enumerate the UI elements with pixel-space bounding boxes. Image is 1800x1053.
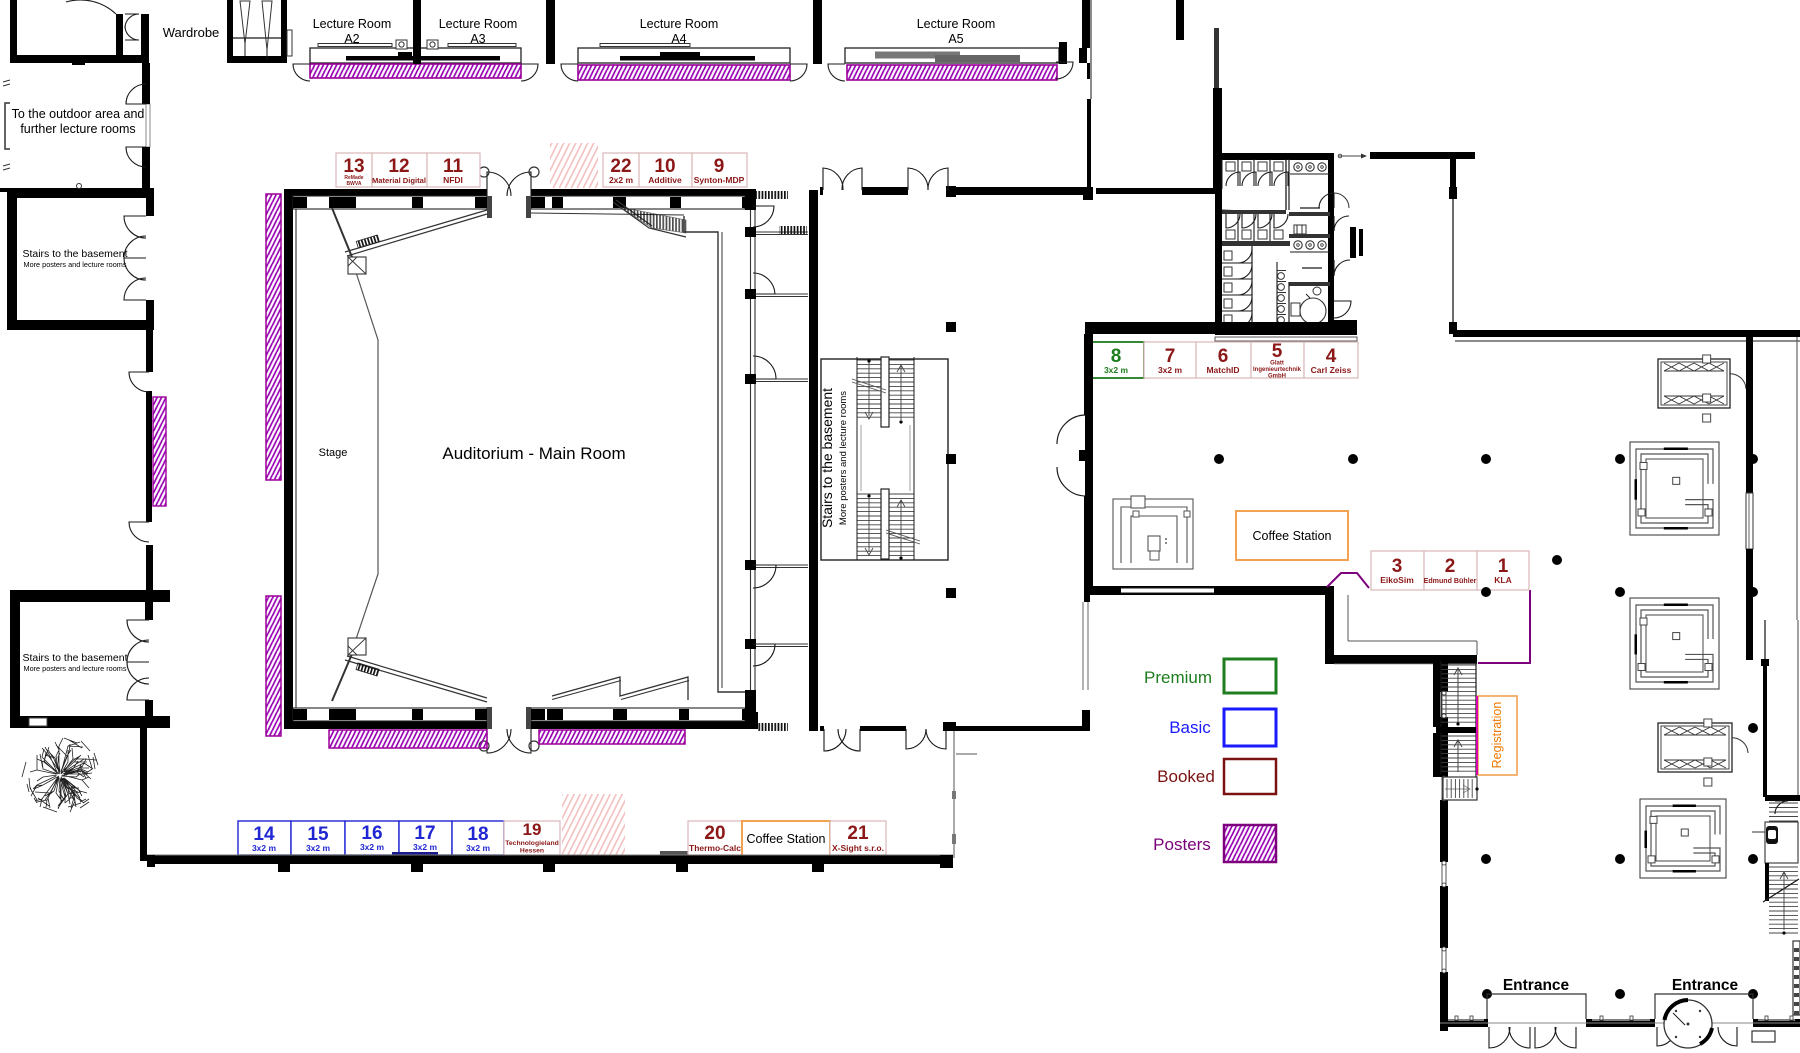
svg-text:2: 2 [1445,556,1456,577]
svg-text:Entrance: Entrance [1503,977,1570,994]
svg-text:Entrance: Entrance [1672,977,1739,994]
svg-text:13: 13 [343,156,364,177]
svg-text:Thermo-Calc: Thermo-Calc [689,843,741,853]
svg-text:14: 14 [253,824,275,845]
svg-text:1: 1 [1498,556,1509,577]
svg-text:3x2 m: 3x2 m [466,843,491,853]
svg-text:KLA: KLA [1494,575,1511,585]
svg-text:10: 10 [654,156,675,177]
svg-text:3x2 m: 3x2 m [1104,365,1129,375]
svg-text:Edmund Bühler: Edmund Bühler [1424,577,1477,585]
svg-text:Basic: Basic [1169,718,1211,737]
svg-text:22: 22 [610,156,631,177]
svg-text:3: 3 [1392,556,1403,577]
svg-text:Lecture Room: Lecture Room [439,17,518,31]
svg-text:6: 6 [1218,346,1229,367]
svg-text:To the outdoor area and: To the outdoor area and [12,107,145,121]
svg-text:16: 16 [361,823,382,844]
svg-text:7: 7 [1165,346,1176,367]
svg-text:15: 15 [307,824,329,845]
svg-text:Lecture Room: Lecture Room [917,17,996,31]
svg-text:Stairs to the basement: Stairs to the basement [22,248,127,260]
svg-text:21: 21 [847,823,869,844]
svg-text:MatchID: MatchID [1206,365,1239,375]
svg-text:EikoSim: EikoSim [1380,575,1414,585]
svg-text:Lecture Room: Lecture Room [640,17,719,31]
svg-text:further lecture rooms: further lecture rooms [20,122,135,136]
svg-text:20: 20 [704,823,725,844]
svg-text:3x2 m: 3x2 m [306,843,331,853]
svg-text:Technologieland: Technologieland [505,840,559,847]
svg-text:Coffee Station: Coffee Station [1253,529,1332,543]
svg-text:2x2 m: 2x2 m [609,175,634,185]
svg-text:11: 11 [443,156,464,177]
svg-text:X-Sight s.r.o.: X-Sight s.r.o. [832,843,884,853]
svg-text:A5: A5 [948,32,963,46]
svg-text:17: 17 [414,823,435,844]
svg-text:8: 8 [1111,346,1122,367]
svg-text:19: 19 [523,820,542,839]
svg-text:Posters: Posters [1153,835,1211,854]
svg-text:Synton-MDP: Synton-MDP [694,175,745,185]
svg-text:Carl Zeiss: Carl Zeiss [1311,365,1352,375]
svg-text:9: 9 [714,156,725,177]
svg-text:More posters and lecture rooms: More posters and lecture rooms [23,664,126,673]
svg-text:Auditorium - Main Room: Auditorium - Main Room [442,444,625,463]
svg-text:Premium: Premium [1144,668,1212,687]
svg-text:Lecture Room: Lecture Room [313,17,392,31]
svg-text:18: 18 [467,824,488,845]
svg-text:4: 4 [1326,346,1337,367]
svg-text:Wardrobe: Wardrobe [163,25,220,40]
svg-text:Coffee Station: Coffee Station [747,832,826,846]
svg-text:3x2 m: 3x2 m [413,842,438,852]
svg-text:Registration: Registration [1490,702,1504,769]
svg-text:Additive: Additive [648,175,682,185]
svg-text:Booked: Booked [1157,767,1215,786]
svg-text:Stairs to the basement: Stairs to the basement [819,388,835,528]
svg-text:Hessen: Hessen [520,848,544,855]
svg-text:BWVA: BWVA [347,181,362,187]
svg-text:Ingenieurtechnik: Ingenieurtechnik [1253,367,1302,373]
svg-text:More posters and lecture rooms: More posters and lecture rooms [23,260,126,269]
svg-text:5: 5 [1272,341,1283,362]
svg-text:NFDI: NFDI [443,175,463,185]
svg-text:GmbH: GmbH [1268,374,1286,380]
svg-text:Stairs to the basement: Stairs to the basement [22,652,127,664]
svg-text:Glatt: Glatt [1270,361,1284,367]
svg-text:3x2 m: 3x2 m [252,843,277,853]
svg-text:12: 12 [388,156,409,177]
svg-text:Material Digital: Material Digital [372,176,426,185]
svg-text:More posters and lecture rooms: More posters and lecture rooms [838,391,849,525]
svg-text:Stage: Stage [319,447,348,459]
svg-text:3x2 m: 3x2 m [1158,365,1183,375]
svg-text:3x2 m: 3x2 m [360,842,385,852]
